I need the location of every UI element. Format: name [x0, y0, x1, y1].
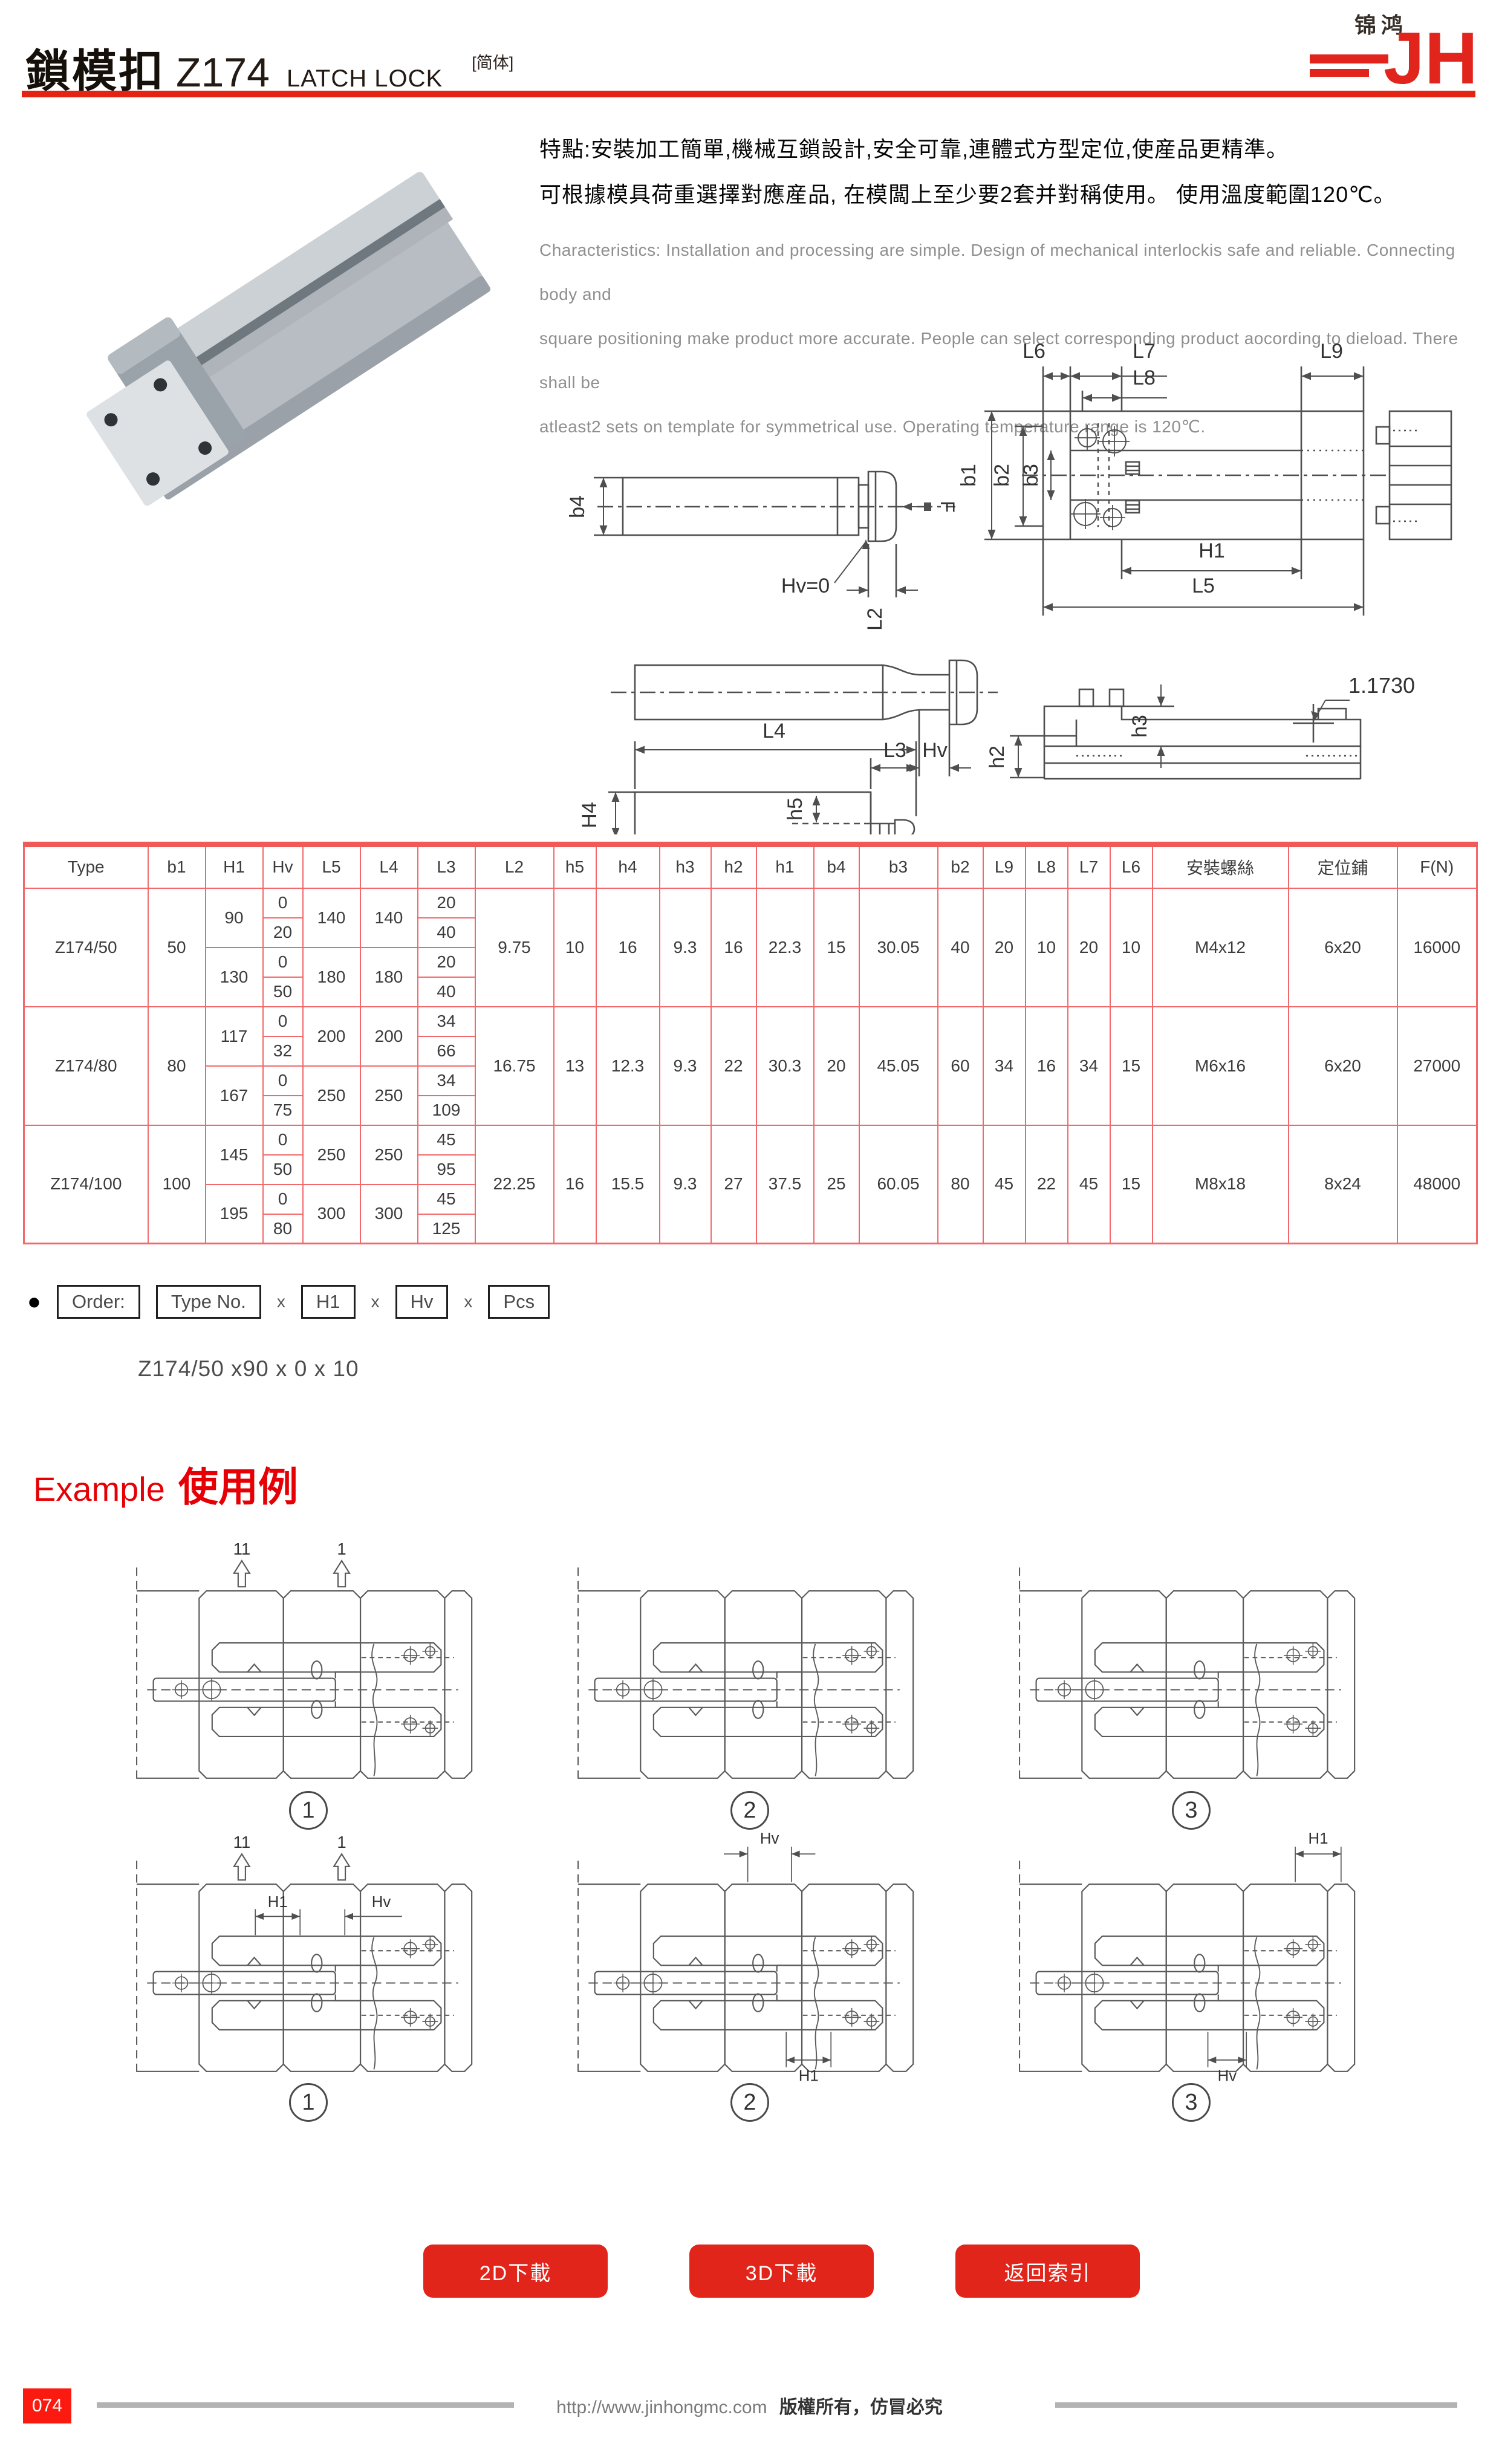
table-cell: 80: [263, 1214, 303, 1244]
table-cell: 27: [711, 1125, 756, 1244]
example-diagram: 111H1Hv: [121, 1832, 496, 2082]
title-en: LATCH LOCK: [287, 65, 443, 93]
table-cell: 16: [596, 888, 660, 1007]
table-cell: 22: [711, 1007, 756, 1125]
example-diagram: [562, 1539, 937, 1789]
dim-label: H1: [1308, 1832, 1328, 1847]
table-cell: 37.5: [756, 1125, 814, 1244]
table-cell: 16: [1026, 1007, 1068, 1125]
table-cell: 20: [418, 948, 475, 977]
table-cell: 30.3: [756, 1007, 814, 1125]
column-header: h1: [756, 845, 814, 888]
dim-label: Hv: [1218, 2067, 1237, 2082]
intro-en-1: Characteristics: Installation and proces…: [539, 228, 1495, 316]
column-header: b4: [814, 845, 859, 888]
table-cell: 0: [263, 1066, 303, 1096]
column-header: L5: [303, 845, 360, 888]
header-divider: [22, 91, 1475, 97]
dim-label: H1: [1198, 539, 1224, 562]
table-cell: 16.75: [475, 1007, 554, 1125]
table-cell: 16000: [1397, 888, 1477, 1007]
table-cell: 95: [418, 1155, 475, 1185]
example-number-cell: 1: [121, 1791, 496, 1830]
arrow-label: 1: [337, 1833, 346, 1851]
example-diagram-row-1: 111: [121, 1539, 1379, 1792]
dim-label: L6: [1023, 340, 1045, 363]
dim-label: b2: [990, 464, 1013, 487]
table-cell: 45: [983, 1125, 1026, 1244]
column-header: h2: [711, 845, 756, 888]
up-arrow-icon: [234, 1854, 250, 1880]
table-cell: 25: [814, 1125, 859, 1244]
logo-en-text: JH: [1384, 17, 1478, 94]
table-cell: 15: [1110, 1125, 1153, 1244]
table-cell: 195: [206, 1185, 263, 1244]
table-cell: 48000: [1397, 1125, 1477, 1244]
circled-number: 3: [1172, 1791, 1211, 1830]
footer-url: http://www.jinhongmc.com: [556, 2397, 767, 2417]
footer-copyright: 版權所有，仿冒必究: [779, 2397, 943, 2417]
table-cell: 20: [1068, 888, 1110, 1007]
table-row: Z174/10010014502502504522.251615.59.3273…: [24, 1125, 1477, 1155]
page-number-badge: 074: [23, 2388, 71, 2423]
example-number-cell: 3: [1004, 1791, 1379, 1830]
dim-label: Hv=0: [781, 574, 830, 597]
catalog-page: 鎖模扣 Z174 LATCH LOCK [简体] 锦鸿 JH: [0, 0, 1499, 2464]
table-cell: 109: [418, 1096, 475, 1125]
dim-label: L7: [1133, 340, 1156, 363]
table-cell: 34: [1068, 1007, 1110, 1125]
dim-label: L5: [1192, 574, 1215, 597]
dim-label: 1.1730: [1348, 673, 1415, 698]
order-row: ● Order: Type No. x H1 x Hv x Pcs: [27, 1285, 550, 1319]
table-cell: 0: [263, 1185, 303, 1214]
table-cell: 100: [148, 1125, 206, 1244]
table-cell: Z174/80: [24, 1007, 148, 1125]
column-header: Type: [24, 845, 148, 888]
column-header: L9: [983, 845, 1026, 888]
example-panel: HvH1: [562, 1832, 937, 2085]
table-cell: 10: [554, 888, 596, 1007]
example-number-row-1: 123: [121, 1791, 1379, 1830]
table-cell: 0: [263, 1125, 303, 1155]
dim-label: L4: [763, 720, 785, 743]
table-cell: 180: [303, 948, 360, 1007]
column-header: H1: [206, 845, 263, 888]
table-cell: M4x12: [1153, 888, 1289, 1007]
product-photo: [33, 139, 523, 526]
dim-label: h2: [986, 746, 1009, 769]
order-box-type: Type No.: [156, 1285, 261, 1319]
dim-label: b3: [1019, 464, 1042, 487]
table-cell: 60.05: [859, 1125, 938, 1244]
dim-label: H1: [799, 2067, 819, 2082]
table-header-row: Typeb1H1HvL5L4L3L2h5h4h3h2h1b4b3b2L9L8L7…: [24, 845, 1477, 888]
company-logo: 锦鸿 JH: [1294, 4, 1494, 94]
column-header: L8: [1026, 845, 1068, 888]
table-cell: 34: [418, 1007, 475, 1036]
column-header: L4: [360, 845, 418, 888]
table-cell: 6x20: [1289, 1007, 1397, 1125]
table-cell: 80: [148, 1007, 206, 1125]
table-cell: 30.05: [859, 888, 938, 1007]
order-box-pcs: Pcs: [488, 1285, 550, 1319]
order-sep: x: [371, 1292, 380, 1312]
title-zh: 鎖模扣: [25, 35, 165, 100]
column-header: L6: [1110, 845, 1153, 888]
dim-label: Hv: [372, 1894, 391, 1911]
dim-label: L3: [883, 739, 906, 762]
footer-text: http://www.jinhongmc.com 版權所有，仿冒必究: [556, 2392, 943, 2419]
table-cell: 250: [360, 1125, 418, 1185]
arrow-label: 1: [337, 1539, 346, 1558]
dim-label: H1: [268, 1894, 288, 1911]
table-cell: 145: [206, 1125, 263, 1185]
table-cell: 45: [418, 1125, 475, 1155]
dim-label: L8: [1133, 366, 1156, 389]
table-cell: 130: [206, 948, 263, 1007]
table-cell: 0: [263, 888, 303, 918]
table-cell: 200: [303, 1007, 360, 1066]
table-cell: 117: [206, 1007, 263, 1066]
table-cell: 13: [554, 1007, 596, 1125]
table-cell: 250: [303, 1125, 360, 1185]
order-label: Order:: [57, 1285, 140, 1319]
table-cell: 20: [263, 918, 303, 948]
spec-table: Typeb1H1HvL5L4L3L2h5h4h3h2h1b4b3b2L9L8L7…: [23, 842, 1478, 1244]
table-cell: 20: [983, 888, 1026, 1007]
table-cell: 16: [554, 1125, 596, 1244]
download-2d-button[interactable]: 2D下載: [423, 2245, 608, 2298]
table-cell: 22.3: [756, 888, 814, 1007]
order-sep: x: [277, 1292, 285, 1312]
table-cell: 15: [814, 888, 859, 1007]
download-3d-button[interactable]: 3D下載: [689, 2245, 874, 2298]
intro-zh-2: 可根據模具荷重選擇對應産品, 在模闆上至少要2套并對稱使用。 使用溫度範圍120…: [539, 177, 1495, 209]
table-cell: 45.05: [859, 1007, 938, 1125]
table-cell: 80: [938, 1125, 983, 1244]
order-example: Z174/50 x90 x 0 x 10: [138, 1356, 359, 1382]
table-cell: 50: [263, 977, 303, 1007]
circled-number: 2: [730, 2083, 769, 2122]
column-header: h4: [596, 845, 660, 888]
table-cell: 50: [148, 888, 206, 1007]
table-cell: 16: [711, 888, 756, 1007]
table-cell: 200: [360, 1007, 418, 1066]
table-cell: 140: [360, 888, 418, 948]
example-title: Example 使用例: [33, 1455, 298, 1513]
table-cell: 0: [263, 948, 303, 977]
table-cell: 300: [303, 1185, 360, 1244]
table-cell: 250: [303, 1066, 360, 1125]
example-panel: H1Hv: [1004, 1832, 1379, 2085]
table-cell: 12.3: [596, 1007, 660, 1125]
table-cell: M6x16: [1153, 1007, 1289, 1125]
table-cell: M8x18: [1153, 1125, 1289, 1244]
table-cell: 40: [938, 888, 983, 1007]
table-cell: 10: [1110, 888, 1153, 1007]
column-header: 安裝螺絲: [1153, 845, 1289, 888]
table-cell: 167: [206, 1066, 263, 1125]
table-cell: 50: [263, 1155, 303, 1185]
circled-number: 1: [289, 2083, 328, 2122]
table-cell: 250: [360, 1066, 418, 1125]
column-header: b1: [148, 845, 206, 888]
circled-number: 2: [730, 1791, 769, 1830]
back-to-index-button[interactable]: 返回索引: [955, 2245, 1140, 2298]
up-arrow-icon: [234, 1561, 250, 1587]
table-cell: 6x20: [1289, 888, 1397, 1007]
column-header: 定位鋪: [1289, 845, 1397, 888]
table-cell: 20: [814, 1007, 859, 1125]
table-cell: 8x24: [1289, 1125, 1397, 1244]
example-panel: 111: [121, 1539, 496, 1792]
example-diagram: 111: [121, 1539, 496, 1789]
example-diagram: H1Hv: [1004, 1832, 1379, 2082]
dim-label: b1: [957, 464, 980, 487]
dim-label: F: [937, 501, 958, 513]
example-number-cell: 2: [562, 2083, 937, 2122]
column-header: b2: [938, 845, 983, 888]
example-diagram: HvH1: [562, 1832, 937, 2082]
table-cell: 0: [263, 1007, 303, 1036]
example-diagram: [1004, 1539, 1379, 1789]
table-cell: 90: [206, 888, 263, 948]
circled-number: 1: [289, 1791, 328, 1830]
column-header: b3: [859, 845, 938, 888]
table-cell: 40: [418, 918, 475, 948]
table-cell: 60: [938, 1007, 983, 1125]
column-header: L2: [475, 845, 554, 888]
table-cell: 20: [418, 888, 475, 918]
footer-divider-right: [1055, 2402, 1457, 2408]
title-model: Z174: [176, 49, 270, 96]
example-number-cell: 2: [562, 1791, 937, 1830]
bullet-icon: ●: [27, 1289, 41, 1315]
lang-tag: [简体]: [472, 50, 513, 73]
dim-label: Hv: [922, 739, 948, 762]
example-title-en: Example: [33, 1469, 165, 1509]
dim-label: b4: [566, 495, 589, 518]
table-cell: 45: [418, 1185, 475, 1214]
order-sep: x: [464, 1292, 472, 1312]
example-number-cell: 3: [1004, 2083, 1379, 2122]
arrow-label: 11: [233, 1539, 251, 1558]
table-cell: Z174/50: [24, 888, 148, 1007]
table-cell: 9.3: [660, 1007, 711, 1125]
dim-label: h5: [784, 798, 807, 821]
table-cell: 15.5: [596, 1125, 660, 1244]
dim-label: L9: [1320, 340, 1343, 363]
column-header: F(N): [1397, 845, 1477, 888]
table-cell: 32: [263, 1036, 303, 1066]
example-title-zh: 使用例: [178, 1455, 298, 1513]
order-box-hv: Hv: [395, 1285, 449, 1319]
example-panel: [562, 1539, 937, 1792]
page-title: 鎖模扣 Z174 LATCH LOCK [简体]: [25, 35, 513, 100]
example-panel: [1004, 1539, 1379, 1792]
table-row: Z174/5050900140140209.7510169.31622.3153…: [24, 888, 1477, 918]
table-cell: 10: [1026, 888, 1068, 1007]
up-arrow-icon: [334, 1854, 350, 1880]
table-cell: 40: [418, 977, 475, 1007]
order-box-h1: H1: [301, 1285, 356, 1319]
example-panel: 111H1Hv: [121, 1832, 496, 2085]
table-cell: 15: [1110, 1007, 1153, 1125]
table-cell: 125: [418, 1214, 475, 1244]
column-header: h5: [554, 845, 596, 888]
table-cell: 34: [983, 1007, 1026, 1125]
table-cell: Z174/100: [24, 1125, 148, 1244]
example-number-row-2: 123: [121, 2083, 1379, 2122]
column-header: Hv: [263, 845, 303, 888]
table-cell: 180: [360, 948, 418, 1007]
table-cell: 300: [360, 1185, 418, 1244]
table-cell: 9.3: [660, 1125, 711, 1244]
table-cell: 34: [418, 1066, 475, 1096]
column-header: L3: [418, 845, 475, 888]
circled-number: 3: [1172, 2083, 1211, 2122]
dim-label: h3: [1128, 715, 1151, 738]
arrow-label: 11: [233, 1833, 251, 1851]
table-cell: 75: [263, 1096, 303, 1125]
footer-divider-left: [97, 2402, 514, 2408]
example-number-cell: 1: [121, 2083, 496, 2122]
up-arrow-icon: [334, 1561, 350, 1587]
example-diagram-row-2: 111H1HvHvH1H1Hv: [121, 1832, 1379, 2085]
table-cell: 27000: [1397, 1007, 1477, 1125]
table-cell: 22.25: [475, 1125, 554, 1244]
dim-label: Hv: [760, 1832, 779, 1847]
table-row: Z174/808011702002003416.751312.39.32230.…: [24, 1007, 1477, 1036]
column-header: L7: [1068, 845, 1110, 888]
table-cell: 9.3: [660, 888, 711, 1007]
technical-drawing: b4L2Hv=0FL6L7L8L9b1b2b3H1L5HvL4L3H4h5h2h…: [532, 327, 1494, 834]
table-cell: 140: [303, 888, 360, 948]
table-cell: 45: [1068, 1125, 1110, 1244]
table-cell: 22: [1026, 1125, 1068, 1244]
dim-label: L2: [863, 608, 886, 631]
spec-table-wrap: Typeb1H1HvL5L4L3L2h5h4h3h2h1b4b3b2L9L8L7…: [23, 842, 1478, 1244]
intro-zh-1: 特點:安裝加工簡單,機械互鎖設計,安全可靠,連體式方型定位,使産品更精準。: [539, 132, 1495, 163]
table-cell: 9.75: [475, 888, 554, 1007]
column-header: h3: [660, 845, 711, 888]
dim-label: H4: [578, 802, 601, 828]
table-cell: 66: [418, 1036, 475, 1066]
